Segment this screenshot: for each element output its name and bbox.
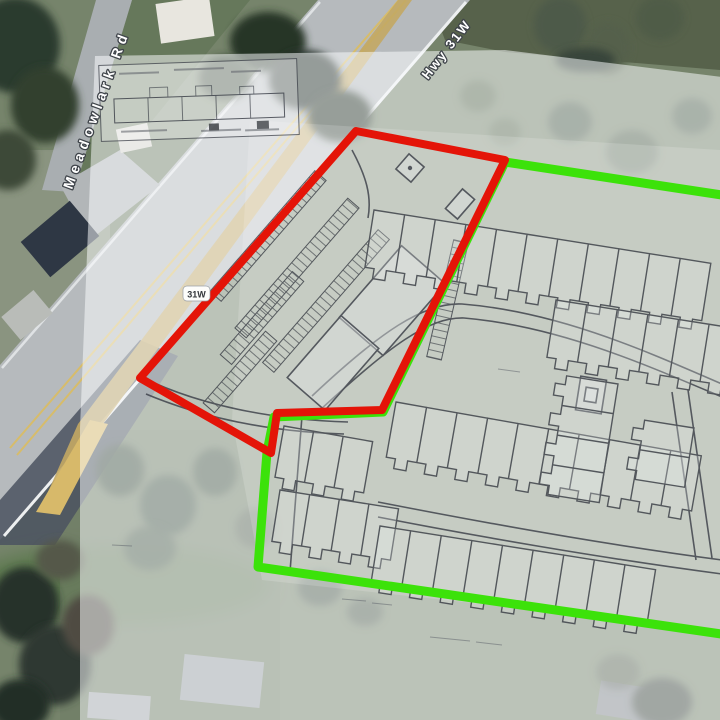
aerial-siteplan-map: Meadowlark Rd Hwy 31W 31W <box>0 0 720 720</box>
route-shield-label: 31W <box>187 290 206 300</box>
route-shield-31w: 31W <box>183 286 210 301</box>
inset-elevation-drawing <box>99 59 300 142</box>
